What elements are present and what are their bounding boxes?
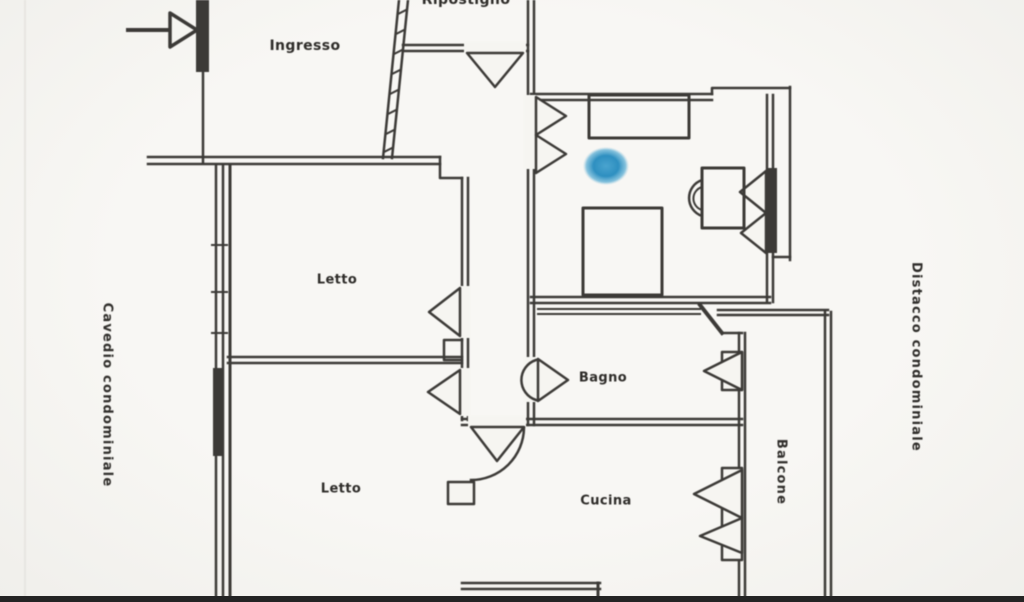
entrance-arrow-icon bbox=[128, 13, 197, 47]
outdoor-label-distacco-condominiale: Distacco condominiale bbox=[909, 262, 924, 452]
floorplan-drawing: Ingresso Ripostiglio Letto Letto Bagno C… bbox=[0, 0, 1024, 602]
image-bottom-border bbox=[0, 596, 1024, 602]
room-label-cucina: Cucina bbox=[580, 494, 631, 509]
room-label-ripostiglio: Ripostiglio bbox=[422, 0, 511, 8]
door-swing-letto2 bbox=[428, 370, 460, 414]
floorplan-svg bbox=[0, 0, 1024, 602]
door-swing-living-1 bbox=[536, 97, 566, 135]
room-label-ingresso: Ingresso bbox=[269, 38, 340, 54]
furniture-layer bbox=[583, 95, 744, 295]
table bbox=[583, 208, 662, 295]
sofa bbox=[589, 95, 689, 138]
door-swing-letto1 bbox=[429, 288, 460, 336]
desk bbox=[702, 168, 744, 228]
room-label-bagno: Bagno bbox=[579, 371, 627, 386]
outdoor-label-cavedio-condominiale: Cavedio condominiale bbox=[100, 303, 115, 488]
door-swing-ripostiglio bbox=[467, 53, 523, 87]
door-swing-bagno bbox=[538, 359, 568, 401]
room-label-letto2: Letto bbox=[321, 482, 361, 497]
floorplan-canvas: Ingresso Ripostiglio Letto Letto Bagno C… bbox=[0, 0, 1024, 602]
window-cucina-1 bbox=[694, 470, 742, 518]
doors-windows-layer bbox=[428, 53, 766, 560]
room-label-letto1: Letto bbox=[317, 273, 357, 288]
chair-arc-outer bbox=[689, 180, 702, 216]
door-swing-living-2 bbox=[536, 135, 566, 173]
blue-marker bbox=[583, 147, 629, 185]
outdoor-label-balcone: Balcone bbox=[774, 439, 789, 505]
